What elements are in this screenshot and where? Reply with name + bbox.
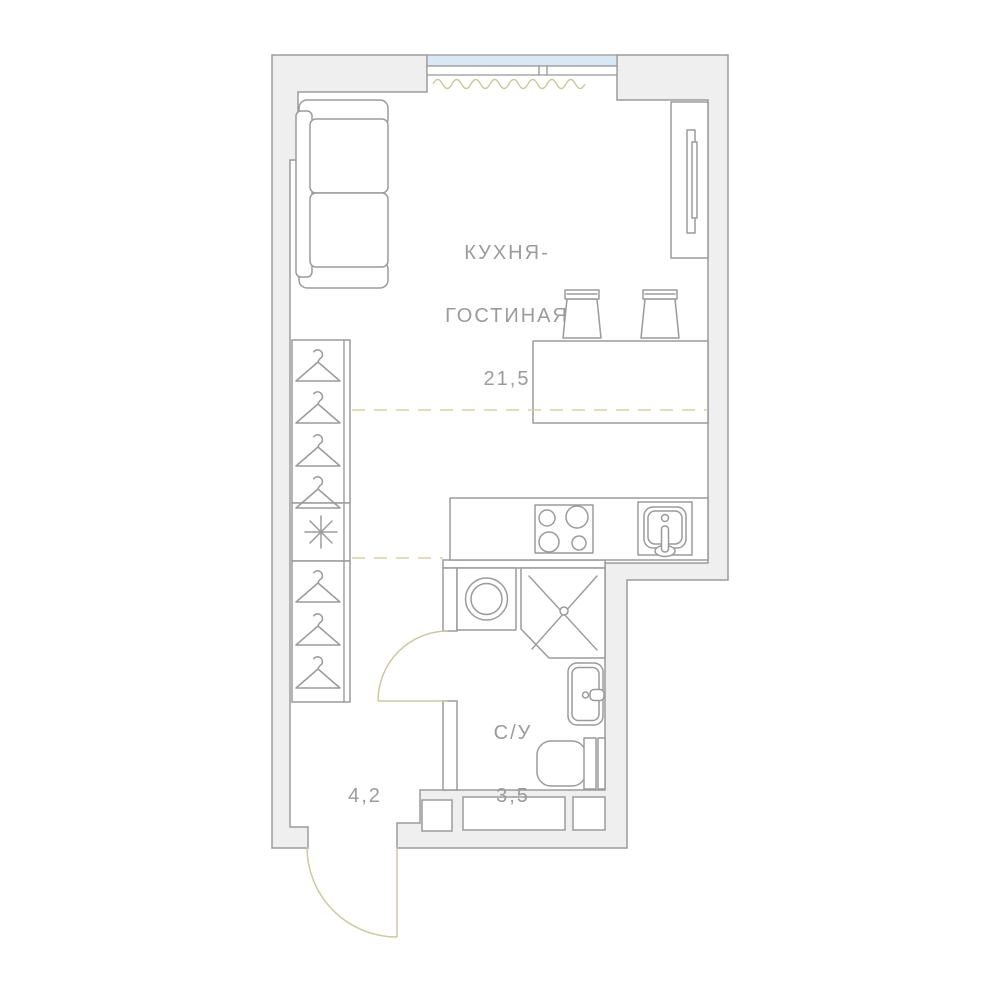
stove <box>535 505 593 553</box>
door-swing-arc <box>378 631 448 701</box>
room-area: 4,2 <box>305 786 425 807</box>
room-area: 21,5 <box>377 369 637 390</box>
bathroom-sink <box>568 663 604 725</box>
door-swing-arc <box>307 847 397 937</box>
sofa <box>296 100 388 288</box>
kitchen-sink <box>638 502 692 557</box>
vent-shaft <box>573 797 605 830</box>
room-name: ГОСТИНАЯ <box>377 306 637 327</box>
washing-machine <box>457 568 516 630</box>
wardrobe-section-bottom <box>292 561 350 702</box>
bar-stool <box>641 290 679 338</box>
tv-console <box>671 102 708 258</box>
vent-shaft <box>422 800 452 831</box>
curtain <box>433 80 585 89</box>
sofa-cushion <box>310 119 388 193</box>
kitchen-bathroom-partition <box>443 560 605 568</box>
bathroom-door <box>378 631 448 701</box>
window-frame <box>427 66 617 75</box>
window-glass <box>427 55 617 66</box>
shower <box>521 568 605 658</box>
conditioner-asterisk-icon <box>305 516 337 548</box>
entrance-door <box>307 847 397 937</box>
room-label-bathroom: С/У 3,5 <box>453 681 573 849</box>
room-label-kitchen-living: КУХНЯ- ГОСТИНАЯ 21,5 <box>377 201 637 432</box>
wardrobe <box>292 340 350 702</box>
floor-plan: КУХНЯ- ГОСТИНАЯ 21,5 С/У 3,5 4,2 <box>0 0 1000 1000</box>
tv-panel <box>692 142 697 218</box>
room-name: КУХНЯ- <box>377 243 637 264</box>
room-label-hallway: 4,2 <box>305 744 425 849</box>
bathroom-left-wall-upper <box>443 568 457 631</box>
room-name: С/У <box>453 723 573 744</box>
window <box>427 55 617 75</box>
floor-plan-drawing <box>0 0 1000 1000</box>
room-area: 3,5 <box>453 786 573 807</box>
